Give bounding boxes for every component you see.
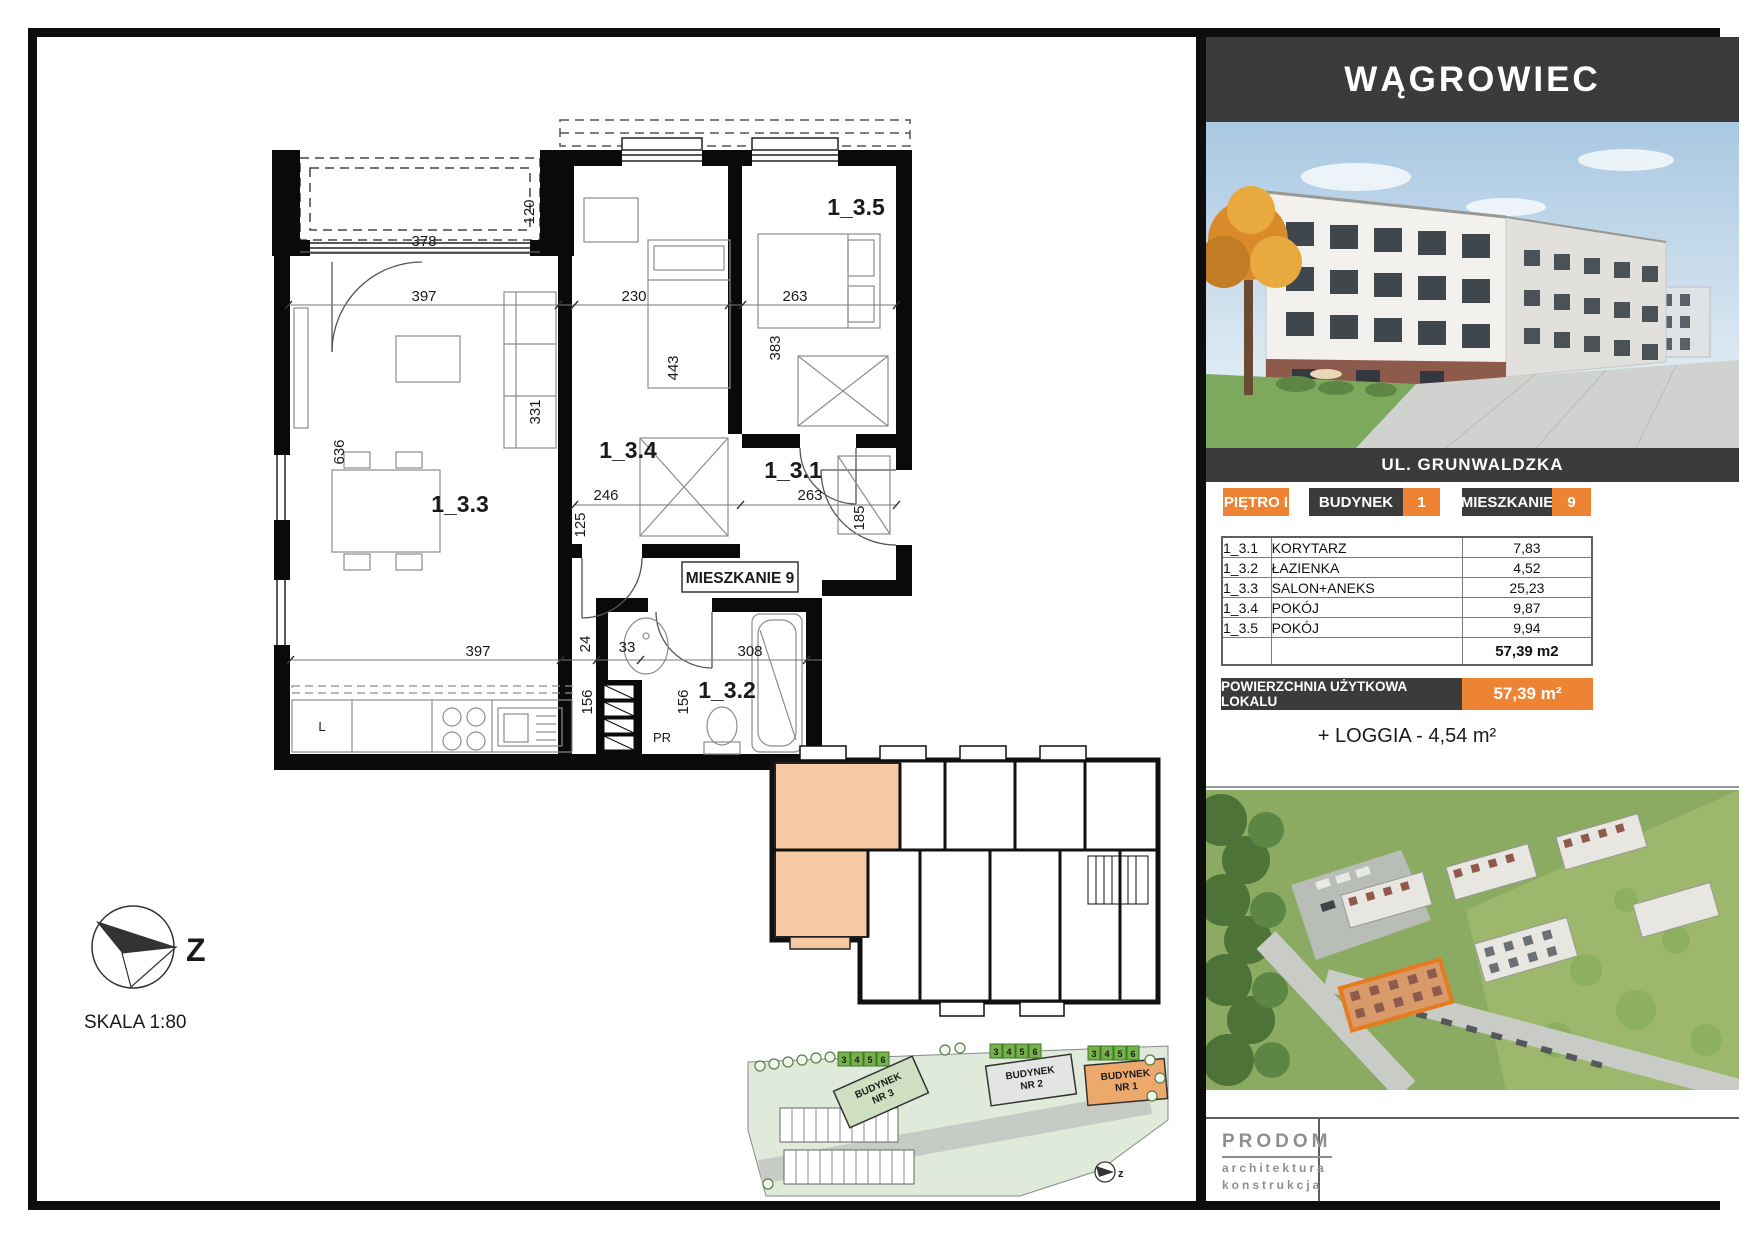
dim-niche: 33 xyxy=(619,639,636,656)
dim-bath-width: 308 xyxy=(737,643,762,660)
apartment-number-badge: 9 xyxy=(1552,488,1591,516)
site-north-arrow: z xyxy=(1095,1162,1124,1182)
room-name: POKÓJ xyxy=(1271,618,1462,638)
dim-bath-height-a: 156 xyxy=(579,689,596,714)
stall-strip-c: 3 4 5 6 xyxy=(1088,1046,1139,1060)
fixture-label-shaft: PR xyxy=(653,730,671,745)
footer-empty-cell xyxy=(1320,1119,1739,1201)
room-code: 1_3.2 xyxy=(1222,558,1271,578)
stall-number: 3 xyxy=(993,1047,998,1057)
dim-corridor-height-b: 185 xyxy=(851,505,868,530)
stall-number: 6 xyxy=(1130,1049,1135,1059)
usable-area-bar: POWIERZCHNIA UŻYTKOWA LOKALU 57,39 m² xyxy=(1221,678,1593,710)
room-area-table: 1_3.1 KORYTARZ 7,83 1_3.2 ŁAZIENKA 4,52 … xyxy=(1221,536,1593,666)
floor-plan-area: 378 120 397 230 263 636 331 443 383 246 … xyxy=(37,37,1196,1201)
aerial-photo xyxy=(1206,790,1739,1090)
dim-room5-height: 383 xyxy=(767,335,784,360)
room-name: KORYTARZ xyxy=(1271,537,1462,558)
project-title: WĄGROWIEC xyxy=(1344,60,1600,100)
room-label-living: 1_3.3 xyxy=(431,491,489,517)
apartment-tag: MIESZKANIE 9 xyxy=(682,562,798,592)
stall-number: 6 xyxy=(880,1055,885,1065)
building-number-badge: 1 xyxy=(1403,488,1440,516)
table-total-row: 57,39 m2 xyxy=(1222,638,1592,666)
table-row: 1_3.4 POKÓJ 9,87 xyxy=(1222,598,1592,618)
apartment-label-badge: MIESZKANIE xyxy=(1462,488,1552,516)
floor-badge: PIĘTRO I xyxy=(1223,488,1289,516)
fixture-label-fridge: L xyxy=(318,719,325,734)
room-label-bathroom: 1_3.2 xyxy=(698,677,756,703)
window-boxes-top xyxy=(622,138,838,150)
parasol xyxy=(1310,369,1342,379)
dim-living-height-b: 636 xyxy=(331,439,348,464)
room-name: POKÓJ xyxy=(1271,598,1462,618)
room-name: ŁAZIENKA xyxy=(1271,558,1462,578)
table-row: 1_3.3 SALON+ANEKS 25,23 xyxy=(1222,578,1592,598)
table-row: 1_3.1 KORYTARZ 7,83 xyxy=(1222,537,1592,558)
section-divider xyxy=(1206,786,1739,788)
footer-row: PRODOM architektura konstrukcja xyxy=(1206,1117,1739,1201)
logo-subtitle-1: architektura xyxy=(1222,1161,1318,1175)
room-label-room5: 1_3.5 xyxy=(827,194,885,220)
stall-number: 5 xyxy=(1117,1049,1122,1059)
room-code: 1_3.1 xyxy=(1222,537,1271,558)
installation-shaft xyxy=(596,680,642,754)
apartment-tag-label: MIESZKANIE 9 xyxy=(686,570,795,587)
building-label-badge: BUDYNEK xyxy=(1309,488,1403,516)
site-north-label: z xyxy=(1118,1168,1124,1180)
scale-label: SKALA 1:80 xyxy=(84,1012,186,1033)
dim-corridor-width-b: 263 xyxy=(797,487,822,504)
site-plan: BUDYNEK NR 3 BUDYNEK NR 2 BUDYNEK NR 1 3… xyxy=(748,1043,1168,1196)
table-row: 1_3.2 ŁAZIENKA 4,52 xyxy=(1222,558,1592,578)
room-code: 1_3.5 xyxy=(1222,618,1271,638)
total-area: 57,39 m2 xyxy=(1462,638,1592,666)
dim-room4-height: 443 xyxy=(665,355,682,380)
stall-number: 3 xyxy=(841,1055,846,1065)
table-row: 1_3.5 POKÓJ 9,94 xyxy=(1222,618,1592,638)
architect-logo: PRODOM architektura konstrukcja xyxy=(1206,1119,1320,1201)
upper-balcony-outline xyxy=(560,120,910,146)
stall-number: 4 xyxy=(1104,1049,1109,1059)
dim-living-height-a: 331 xyxy=(527,399,544,424)
empty-cell xyxy=(1222,638,1271,666)
logo-subtitle-2: konstrukcja xyxy=(1222,1178,1318,1192)
project-title-bar: WĄGROWIEC xyxy=(1206,37,1739,122)
empty-cell xyxy=(1271,638,1462,666)
stall-number: 4 xyxy=(1006,1047,1011,1057)
north-label: Z xyxy=(186,932,206,968)
apartment-card-page: 378 120 397 230 263 636 331 443 383 246 … xyxy=(0,0,1754,1240)
stall-strip-a: 3 4 5 6 xyxy=(838,1052,889,1066)
room-area: 25,23 xyxy=(1462,578,1592,598)
dim-corridor-height-a: 125 xyxy=(572,512,589,537)
site-building-1-number: NR 1 xyxy=(1115,1081,1139,1094)
building-render-photo xyxy=(1206,122,1739,448)
dim-bath-height-b: 156 xyxy=(675,689,692,714)
street-address-bar: UL. GRUNWALDZKA xyxy=(1206,448,1739,482)
logo-name: PRODOM xyxy=(1222,1131,1332,1158)
stall-number: 3 xyxy=(1091,1049,1096,1059)
info-panel: WĄGROWIEC xyxy=(1206,37,1739,1201)
stall-number: 5 xyxy=(867,1055,872,1065)
dim-kitchen-width: 397 xyxy=(465,643,490,660)
dim-step: 24 xyxy=(577,636,594,653)
dim-loggia-width: 378 xyxy=(411,233,436,250)
dim-loggia-depth: 120 xyxy=(521,199,538,224)
unit-info-badges: PIĘTRO I BUDYNEK 1 MIESZKANIE 9 xyxy=(1206,488,1739,516)
usable-area-value: 57,39 m² xyxy=(1462,678,1593,710)
building-floor-overview xyxy=(772,746,1158,1016)
dim-room5-width: 263 xyxy=(782,288,807,305)
dim-living-width: 397 xyxy=(411,288,436,305)
room-area: 4,52 xyxy=(1462,558,1592,578)
stall-number: 5 xyxy=(1019,1047,1024,1057)
room-label-room4: 1_3.4 xyxy=(599,437,657,463)
dim-room4-width: 230 xyxy=(621,288,646,305)
room-name: SALON+ANEKS xyxy=(1271,578,1462,598)
usable-area-label: POWIERZCHNIA UŻYTKOWA LOKALU xyxy=(1221,678,1462,710)
loggia-note: + LOGGIA - 4,54 m² xyxy=(1221,725,1593,748)
room-code: 1_3.3 xyxy=(1222,578,1271,598)
loggia-outline xyxy=(300,158,540,240)
north-arrow: Z xyxy=(92,906,206,988)
panel-divider xyxy=(1196,37,1206,1201)
room-label-corridor: 1_3.1 xyxy=(764,457,822,483)
stall-number: 6 xyxy=(1032,1047,1037,1057)
dim-corridor-width-a: 246 xyxy=(593,487,618,504)
room-area: 9,94 xyxy=(1462,618,1592,638)
room-area: 7,83 xyxy=(1462,537,1592,558)
stall-strip-b: 3 4 5 6 xyxy=(990,1044,1041,1058)
stall-number: 4 xyxy=(854,1055,859,1065)
room-area: 9,87 xyxy=(1462,598,1592,618)
room-code: 1_3.4 xyxy=(1222,598,1271,618)
